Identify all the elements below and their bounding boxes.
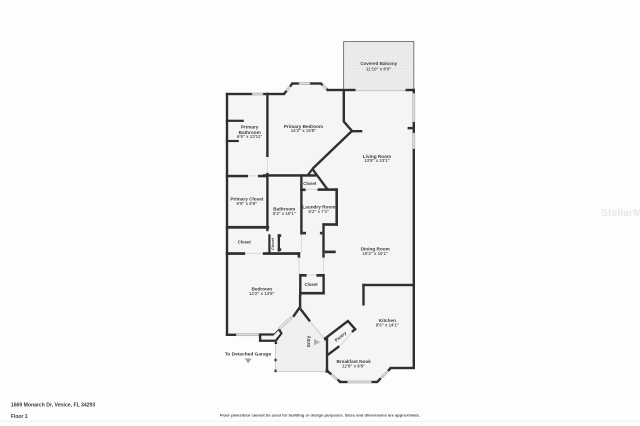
svg-text:11'10" x 8'0": 11'10" x 8'0" <box>366 67 391 72</box>
svg-text:Closet: Closet <box>270 237 275 250</box>
svg-text:12'2" x 13'8": 12'2" x 13'8" <box>249 291 275 296</box>
svg-text:Closet: Closet <box>305 282 319 287</box>
svg-text:StellarMLS: StellarMLS <box>601 207 640 219</box>
svg-text:Closet: Closet <box>303 181 317 186</box>
svg-text:6'2" x 7'1": 6'2" x 7'1" <box>309 209 330 214</box>
svg-text:Covered Balcony: Covered Balcony <box>360 61 397 66</box>
svg-text:6'9" x 8'6": 6'9" x 8'6" <box>237 201 258 206</box>
svg-text:Floor plans/tour cannot be use: Floor plans/tour cannot be used for buil… <box>220 413 420 418</box>
svg-text:12'8" x 8'6": 12'8" x 8'6" <box>342 364 365 369</box>
svg-text:1669 Monarch Dr, Venice, FL 34: 1669 Monarch Dr, Venice, FL 34293 <box>11 402 95 408</box>
svg-text:Primary: Primary <box>241 124 259 129</box>
svg-text:6'9" x 13'11": 6'9" x 13'11" <box>237 134 262 139</box>
svg-text:Closet: Closet <box>238 240 252 245</box>
svg-text:13'8" x 23'1": 13'8" x 23'1" <box>364 158 390 163</box>
svg-text:Floor 1: Floor 1 <box>11 414 28 420</box>
svg-text:15'3" x 10'1": 15'3" x 10'1" <box>362 251 388 256</box>
svg-text:8'5" x 14'1": 8'5" x 14'1" <box>376 323 399 328</box>
svg-text:5'3" x 10'1": 5'3" x 10'1" <box>273 211 296 216</box>
svg-text:Entry: Entry <box>306 335 311 347</box>
svg-text:14'2" x 15'8": 14'2" x 15'8" <box>291 128 317 133</box>
svg-text:To Detached Garage: To Detached Garage <box>225 351 272 357</box>
